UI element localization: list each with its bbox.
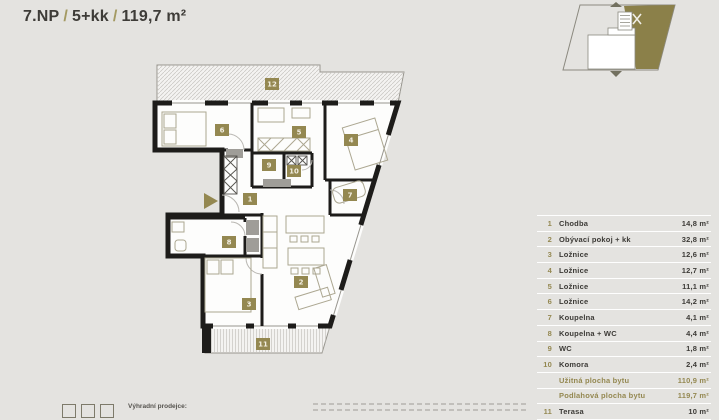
- room-number: 5: [537, 282, 552, 291]
- room-area: 4,4 m²: [686, 329, 711, 338]
- floor-plan: 126549101782311: [140, 55, 450, 365]
- room-badge: 9: [262, 159, 276, 171]
- room-label: Chodba: [552, 219, 682, 228]
- room-label: Ložnice: [552, 266, 682, 275]
- room-number: 4: [537, 266, 552, 275]
- svg-text:3: 3: [247, 301, 252, 309]
- room-area-table: 1Chodba14,8 m²2Obývací pokoj + kk32,8 m²…: [537, 215, 711, 420]
- footer-fineprint-placeholder: [313, 403, 529, 415]
- room-number: 8: [537, 329, 552, 338]
- room-label: Koupelna: [552, 313, 686, 322]
- room-area: 12,6 m²: [682, 250, 711, 259]
- room-number: 9: [537, 344, 552, 353]
- svg-text:2: 2: [299, 279, 304, 287]
- room-area: 14,8 m²: [682, 219, 711, 228]
- room-area: 12,7 m²: [682, 266, 711, 275]
- svg-text:12: 12: [267, 81, 277, 89]
- entrance-arrow-icon: [204, 193, 218, 209]
- room-area: 4,1 m²: [686, 313, 711, 322]
- title-layout: 5+kk: [72, 8, 109, 25]
- room-label: Terasa: [552, 407, 688, 416]
- svg-text:4: 4: [349, 137, 354, 145]
- title-floor: 7.NP: [23, 8, 59, 25]
- room-badge: 6: [215, 124, 229, 136]
- room-area: 32,8 m²: [682, 235, 711, 244]
- table-row: 2Obývací pokoj + kk32,8 m²: [537, 232, 711, 248]
- table-row: 9WC1,8 m²: [537, 342, 711, 358]
- svg-text:6: 6: [220, 127, 225, 135]
- arrow-down-icon: [610, 71, 622, 77]
- room-label: Užitná plocha bytu: [552, 376, 678, 385]
- room-badge: 12: [265, 78, 279, 90]
- svg-text:8: 8: [227, 239, 232, 247]
- room-number: 7: [537, 313, 552, 322]
- table-row: 4Ložnice12,7 m²: [537, 263, 711, 279]
- room-number: 2: [537, 235, 552, 244]
- room-badge: 3: [242, 298, 256, 310]
- building-footprint: [588, 35, 635, 69]
- svg-text:1: 1: [248, 196, 253, 204]
- table-row: Podlahová plocha bytu119,7 m²: [537, 389, 711, 405]
- page-title: 7.NP/5+kk/119,7 m²: [23, 8, 186, 26]
- svg-text:9: 9: [267, 162, 272, 170]
- table-row: 7Koupelna4,1 m²: [537, 310, 711, 326]
- table-row: 3Ložnice12,6 m²: [537, 247, 711, 263]
- table-row: 11Terasa10 m²: [537, 404, 711, 420]
- terrace-12: [157, 65, 404, 103]
- table-row: 1Chodba14,8 m²: [537, 216, 711, 232]
- title-separator: /: [59, 8, 72, 25]
- room-label: Komora: [552, 360, 686, 369]
- room-badge: 8: [222, 236, 236, 248]
- svg-text:10: 10: [289, 168, 299, 176]
- room-area: 110,9 m²: [678, 376, 711, 385]
- room-label: Ložnice: [552, 250, 682, 259]
- room-badge: 2: [294, 276, 308, 288]
- room-badge: 5: [292, 126, 306, 138]
- room-label: Podlahová plocha bytu: [552, 391, 678, 400]
- room-badge: 10: [287, 165, 301, 177]
- room-number: 6: [537, 297, 552, 306]
- room-label: Ložnice: [552, 297, 682, 306]
- table-row: 10Komora2,4 m²: [537, 357, 711, 373]
- room-badge: 7: [343, 189, 357, 201]
- room-area: 11,1 m²: [682, 282, 711, 291]
- room-label: Obývací pokoj + kk: [552, 235, 682, 244]
- site-minimap: zahrada: [552, 0, 719, 92]
- table-row: 5Ložnice11,1 m²: [537, 279, 711, 295]
- room-area: 10 m²: [688, 407, 711, 416]
- svg-text:11: 11: [258, 341, 268, 349]
- room-area: 2,4 m²: [686, 360, 711, 369]
- logo-squares-icon: [62, 404, 114, 418]
- svg-text:5: 5: [297, 129, 302, 137]
- room-number: 11: [537, 407, 552, 416]
- room-number: 3: [537, 250, 552, 259]
- room-area: 14,2 m²: [682, 297, 711, 306]
- title-area: 119,7 m²: [122, 8, 187, 25]
- room-label: Koupelna + WC: [552, 329, 686, 338]
- room-label: WC: [552, 344, 686, 353]
- room-area: 1,8 m²: [686, 344, 711, 353]
- table-row: 6Ložnice14,2 m²: [537, 294, 711, 310]
- table-row: Užitná plocha bytu110,9 m²: [537, 373, 711, 389]
- room-badge: 4: [344, 134, 358, 146]
- table-row: 8Koupelna + WC4,4 m²: [537, 326, 711, 342]
- room-number: 10: [537, 360, 552, 369]
- room-number: 1: [537, 219, 552, 228]
- svg-text:7: 7: [348, 192, 353, 200]
- room-label: Ložnice: [552, 282, 682, 291]
- room-badge: 11: [256, 338, 270, 350]
- room-area: 119,7 m²: [678, 391, 711, 400]
- room-badge: 1: [243, 193, 257, 205]
- title-separator: /: [109, 8, 122, 25]
- floor-stack-icon: [618, 12, 632, 30]
- dealer-label: Výhradní prodejce:: [128, 403, 187, 410]
